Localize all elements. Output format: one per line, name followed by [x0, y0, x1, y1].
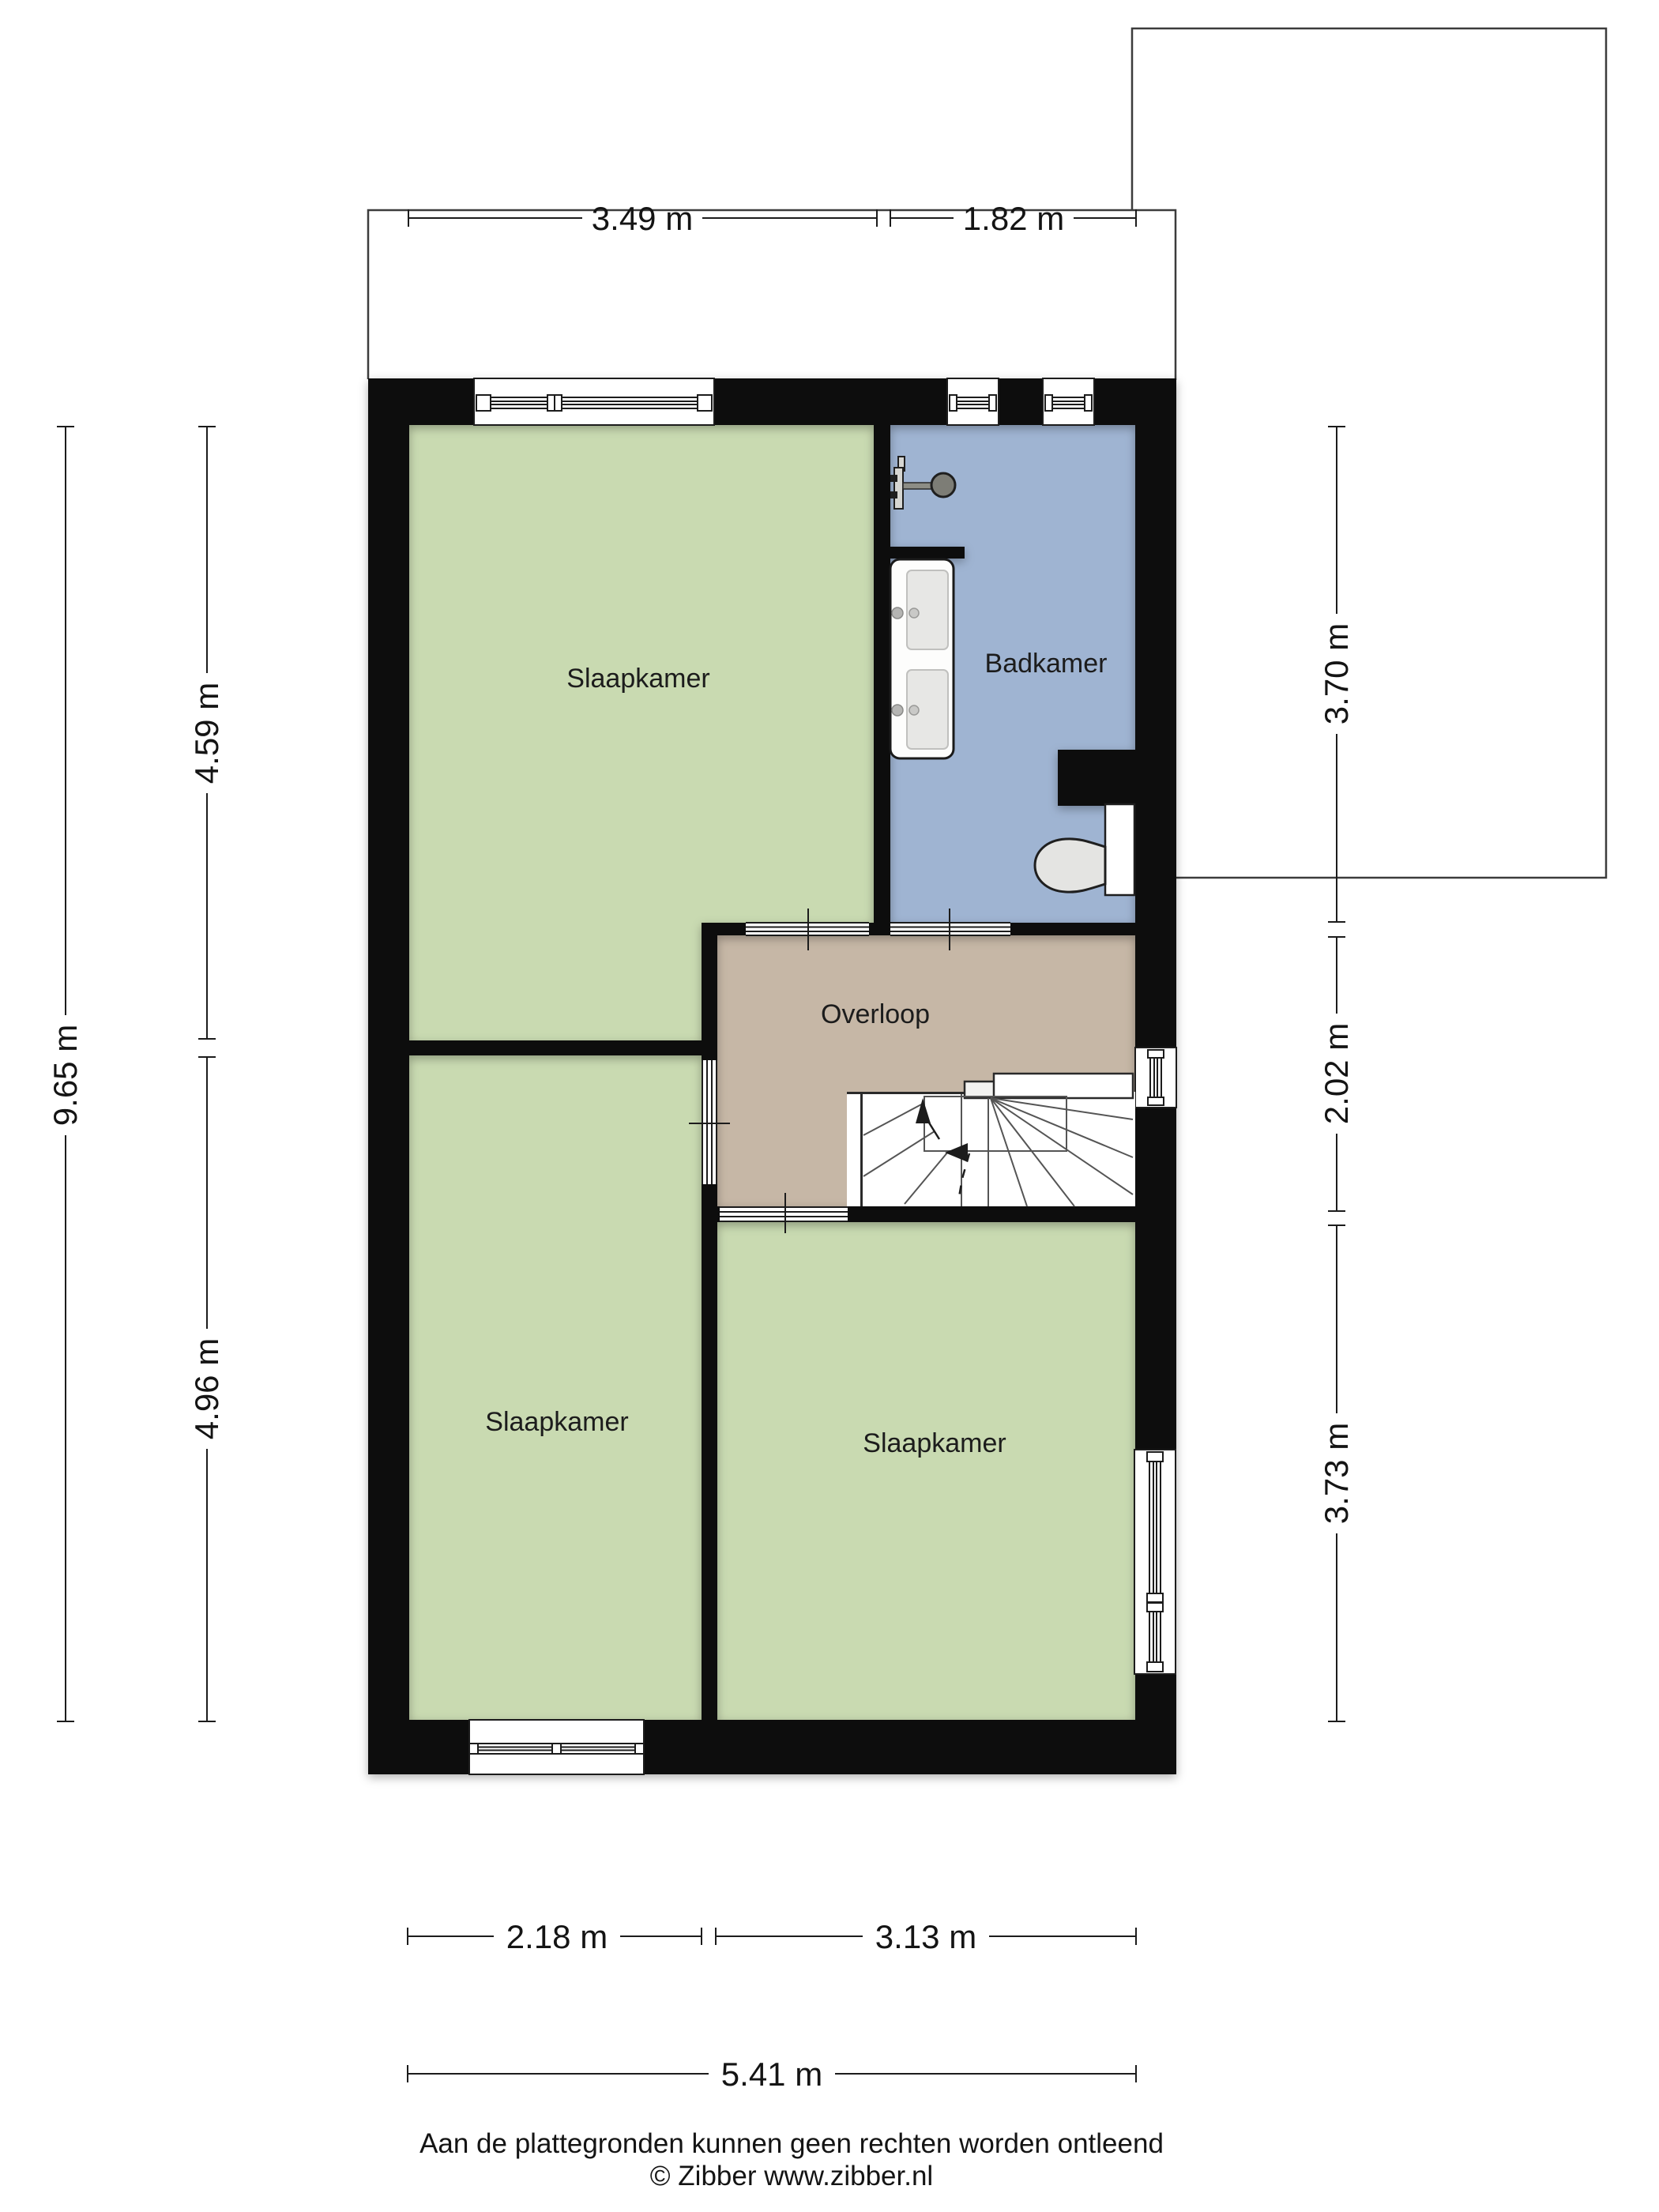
- svg-text:© Zibber www.zibber.nl: © Zibber www.zibber.nl: [650, 2161, 933, 2191]
- svg-text:Slaapkamer: Slaapkamer: [566, 664, 709, 694]
- svg-text:3.70 m: 3.70 m: [1318, 623, 1355, 724]
- svg-text:1.82 m: 1.82 m: [963, 200, 1064, 237]
- svg-text:Slaapkamer: Slaapkamer: [485, 1407, 628, 1437]
- svg-text:3.13 m: 3.13 m: [875, 1918, 976, 1955]
- svg-text:3.73 m: 3.73 m: [1318, 1423, 1355, 1524]
- svg-text:5.41 m: 5.41 m: [721, 2056, 822, 2093]
- svg-text:Overloop: Overloop: [821, 999, 930, 1029]
- svg-text:9.65 m: 9.65 m: [47, 1025, 84, 1126]
- svg-text:2.18 m: 2.18 m: [506, 1918, 608, 1955]
- svg-text:Badkamer: Badkamer: [985, 649, 1108, 679]
- svg-text:4.59 m: 4.59 m: [188, 683, 225, 784]
- svg-text:4.96 m: 4.96 m: [188, 1338, 225, 1439]
- svg-text:Slaapkamer: Slaapkamer: [863, 1428, 1006, 1458]
- svg-text:Aan de plattegronden kunnen ge: Aan de plattegronden kunnen geen rechten…: [419, 2128, 1164, 2159]
- svg-text:3.49 m: 3.49 m: [592, 200, 693, 237]
- svg-text:2.02 m: 2.02 m: [1318, 1023, 1355, 1124]
